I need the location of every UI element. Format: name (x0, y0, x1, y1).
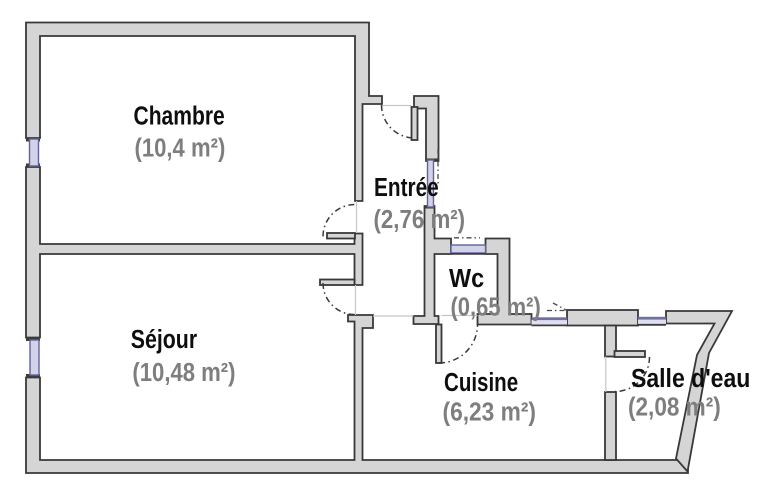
svg-text:(2,08 m²): (2,08 m²) (628, 393, 721, 422)
svg-text:(2,76 m²): (2,76 m²) (374, 205, 466, 234)
svg-text:(10,4 m²): (10,4 m²) (135, 134, 226, 163)
svg-text:(6,23 m²): (6,23 m²) (443, 398, 536, 427)
svg-text:(10,48 m²): (10,48 m²) (132, 358, 235, 387)
svg-text:Wc: Wc (449, 265, 484, 293)
svg-text:(0,65 m²): (0,65 m²) (451, 293, 541, 322)
svg-text:Cuisine: Cuisine (444, 368, 518, 397)
svg-text:Séjour: Séjour (131, 325, 197, 355)
svg-text:Chambre: Chambre (134, 103, 225, 132)
svg-text:Salle d'eau: Salle d'eau (631, 365, 750, 394)
svg-text:Entrée: Entrée (374, 173, 439, 202)
